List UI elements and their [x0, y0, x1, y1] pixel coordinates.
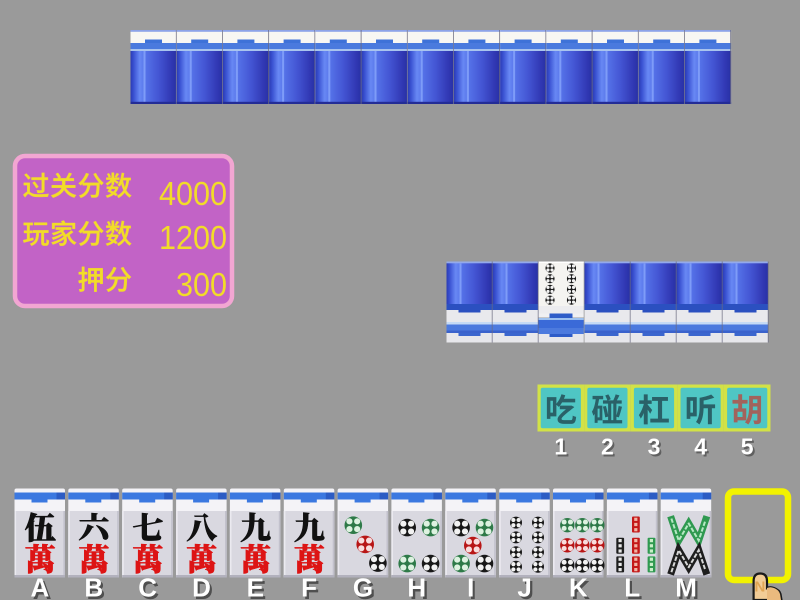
- svg-text:M: M: [675, 573, 697, 600]
- svg-text:3: 3: [648, 434, 661, 460]
- svg-text:A: A: [31, 573, 50, 600]
- svg-text:2: 2: [601, 434, 614, 460]
- svg-text:I: I: [467, 573, 474, 600]
- svg-text:D: D: [192, 573, 211, 600]
- svg-text:N: N: [755, 579, 766, 596]
- svg-text:1: 1: [554, 434, 567, 460]
- svg-text:B: B: [84, 573, 103, 600]
- svg-text:K: K: [569, 573, 588, 600]
- svg-text:1200: 1200: [159, 219, 227, 256]
- svg-text:E: E: [247, 573, 264, 600]
- svg-text:5: 5: [741, 434, 754, 460]
- svg-text:4000: 4000: [159, 175, 227, 212]
- svg-text:C: C: [138, 573, 157, 600]
- svg-text:G: G: [353, 573, 373, 600]
- svg-text:300: 300: [176, 266, 227, 303]
- svg-text:L: L: [624, 573, 640, 600]
- svg-text:J: J: [517, 573, 531, 600]
- svg-text:F: F: [301, 573, 317, 600]
- svg-text:4: 4: [694, 434, 707, 460]
- svg-text:H: H: [407, 573, 426, 600]
